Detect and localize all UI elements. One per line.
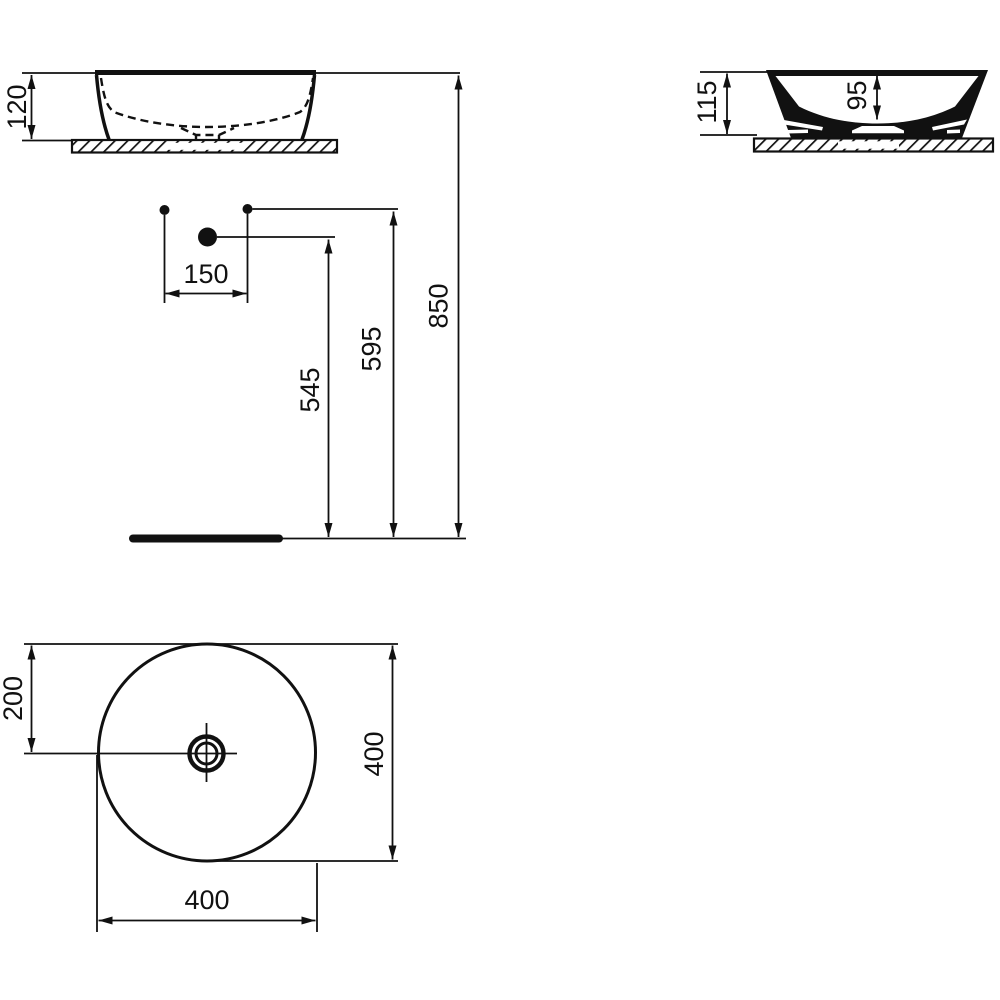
foot-slot-left bbox=[787, 130, 808, 134]
dim-label-115: 115 bbox=[692, 80, 722, 123]
foot-slot-right bbox=[947, 130, 960, 134]
supply-point-left bbox=[160, 205, 170, 215]
dim-label-150: 150 bbox=[183, 259, 228, 289]
countertop-cutout bbox=[168, 143, 245, 150]
dim-label-200: 200 bbox=[0, 676, 28, 721]
bowl-interior-hidden-line bbox=[101, 78, 313, 127]
plan-view: 200 400 400 bbox=[0, 644, 398, 932]
waste-outlet-point bbox=[198, 228, 217, 247]
drain-recess bbox=[852, 126, 904, 133]
dim-label-400-depth: 400 bbox=[359, 731, 389, 776]
dim-label-595: 595 bbox=[357, 326, 387, 371]
dim-label-120: 120 bbox=[2, 84, 32, 129]
dim-label-850: 850 bbox=[424, 283, 454, 328]
dim-label-95: 95 bbox=[842, 80, 872, 110]
dim-label-400-width: 400 bbox=[184, 885, 229, 915]
supply-point-right bbox=[243, 204, 253, 214]
washbasin-technical-drawing: 120 115 95 150 bbox=[0, 0, 1000, 1000]
countertop-cutout bbox=[838, 141, 899, 148]
dimension-drawing-canvas: 120 115 95 150 bbox=[0, 0, 1000, 1000]
basin-wall-right bbox=[302, 75, 315, 140]
dim-label-545: 545 bbox=[295, 367, 325, 412]
front-elevation-view: 120 bbox=[2, 73, 460, 153]
side-section-view: 115 95 bbox=[692, 70, 993, 152]
